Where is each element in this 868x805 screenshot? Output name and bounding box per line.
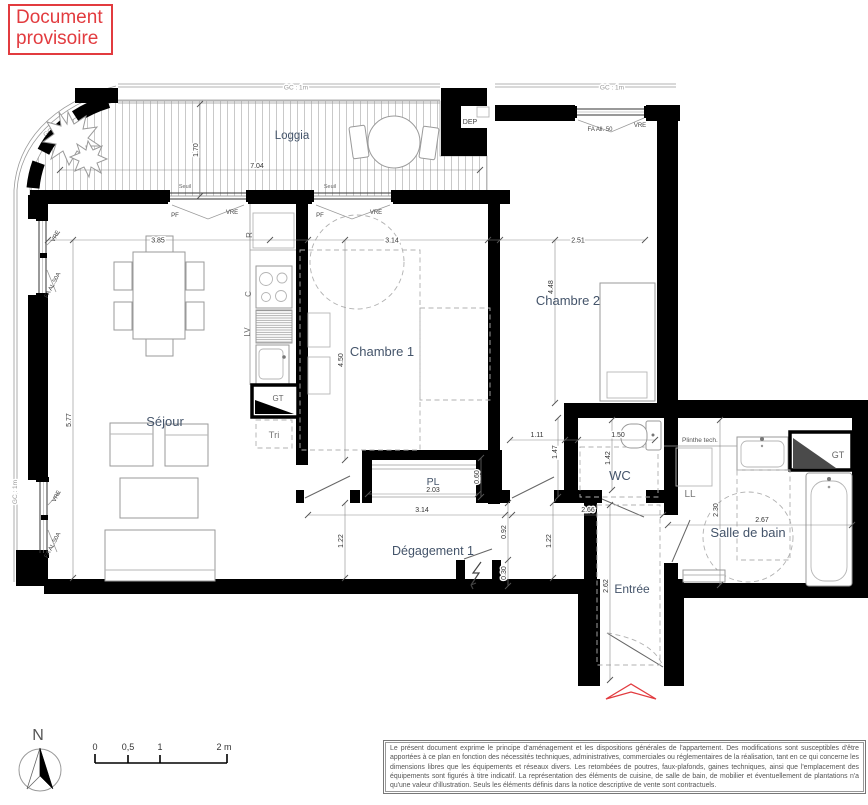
vre-label-left-1: VRE (51, 230, 62, 244)
dim-label: 3.85 (151, 238, 165, 245)
bed-dashed (420, 308, 490, 400)
dim-label: 2.62 (603, 579, 610, 593)
dining-table (133, 252, 185, 339)
dim-label: 1.11 (530, 432, 543, 439)
gc-label-top-right: GC : 1m (600, 85, 624, 92)
scale-tick-05: 0,5 (122, 742, 135, 752)
room-label-chambre2: Chambre 2 (536, 293, 600, 308)
dining-chair (114, 262, 132, 290)
dim-label: 0.92 (501, 525, 508, 539)
dishwasher-label: LV (243, 327, 252, 337)
dim-label: 1.22 (546, 534, 553, 548)
dim-label: 2.30 (713, 503, 720, 517)
room-label-placard: PL (427, 476, 440, 488)
sofa (105, 530, 215, 581)
dim-label: 3.14 (415, 507, 429, 514)
scale-tick-1: 1 (157, 742, 162, 752)
hob-label: C (244, 291, 253, 297)
dining-chair (186, 302, 204, 330)
plinthe-label: Plinthe tech. (682, 437, 718, 444)
vre-label-2: VRE (370, 210, 382, 216)
room-label-sejour: Séjour (146, 414, 184, 429)
gt-label-bath: GT (832, 450, 845, 460)
vre-label-left-2: VRE (52, 490, 63, 504)
provisional-stamp: Document provisoire (8, 4, 113, 55)
washing-machine-area (676, 448, 712, 486)
nightstand (308, 357, 330, 394)
dim-label: 1.22 (338, 534, 345, 548)
dim-label: 1.42 (605, 451, 612, 465)
gc-label-left: GC : 1m (12, 480, 19, 504)
clearance-circle (310, 215, 404, 309)
room-label-loggia: Loggia (275, 130, 310, 142)
dim-label: 5.77 (66, 413, 73, 427)
dim-label: 7.04 (250, 163, 264, 170)
chambre2-furniture (600, 283, 655, 401)
loggia-round-table (368, 116, 420, 168)
scale-tick-2m: 2 m (216, 742, 231, 752)
dining-chair (146, 338, 173, 356)
gc-label-top-left: GC : 1m (284, 85, 308, 92)
bathtub-icon (806, 473, 852, 586)
scale-bar: 0 0,5 1 2 m (92, 742, 231, 763)
legal-notice: Le présent document exprime le principe … (383, 740, 866, 794)
fa-al50a-label-left-1: FA AL.50A (44, 272, 62, 300)
dim-label: 2.03 (426, 487, 440, 494)
scale-tick-0: 0 (92, 742, 97, 752)
north-arrow: N (19, 727, 61, 791)
dining-chair (186, 262, 204, 290)
legal-notice-text: Le présent document exprime le principe … (390, 745, 859, 789)
armchair (165, 424, 208, 466)
sejour-furniture (105, 236, 215, 581)
room-label-entree: Entrée (614, 582, 650, 596)
toilet-bowl-icon (621, 424, 647, 448)
dim-label: 2.51 (571, 238, 585, 245)
room-label-wc: WC (609, 468, 631, 483)
dim-label: 3.14 (385, 238, 399, 245)
dim-label: 1.47 (552, 445, 559, 459)
coffee-table (120, 478, 198, 518)
bath-step (683, 570, 725, 582)
fridge-label: R (245, 232, 254, 238)
dim-label: 4.48 (548, 280, 555, 294)
room-label-salle-de-bain: Salle de bain (710, 525, 785, 540)
washing-machine-label: LL (684, 489, 696, 500)
stamp-line1: Document (16, 7, 103, 28)
armchair (110, 423, 153, 466)
gt-label-kitchen: GT (272, 394, 283, 403)
fa-all50-label: FA All. 50 (587, 127, 613, 133)
dishwasher-icon (256, 310, 292, 343)
pf-label-2: PF (316, 213, 324, 219)
floor-plan: GC : 1m GC : 1m GC : 1m GC : 1m (0, 0, 868, 800)
vre-label-1: VRE (226, 210, 238, 216)
dep-label: DEP (463, 119, 478, 126)
dim-label: 4.50 (338, 353, 345, 367)
pf-label-1: PF (171, 213, 179, 219)
fridge-icon (253, 213, 294, 248)
dim-label: 2.67 (755, 517, 769, 524)
seuil-label-2: Seuil (324, 184, 336, 190)
hob-icon (256, 266, 292, 308)
stamp-line2: provisoire (16, 28, 103, 49)
kitchen (250, 204, 298, 448)
closet-rail (372, 465, 476, 497)
dim-label: 0.60 (474, 470, 481, 484)
entrance-arrow-icon (606, 684, 656, 699)
bathroom-fixtures (664, 432, 852, 586)
room-label-chambre1: Chambre 1 (350, 344, 414, 359)
dim-label: 2.66 (581, 507, 595, 514)
dim-label: 1.50 (611, 432, 625, 439)
dining-chair (114, 302, 132, 330)
seuil-label-1: Seuil (179, 184, 191, 190)
north-label: N (32, 727, 44, 744)
vre-label-3: VRE (634, 123, 646, 129)
tri-label: Tri (269, 430, 280, 441)
dim-label: 1.70 (193, 143, 200, 157)
nightstand (308, 313, 330, 347)
dim-label: 0.30 (501, 566, 508, 580)
room-label-degagement: Dégagement 1 (392, 544, 474, 558)
chambre1-furniture (300, 215, 490, 450)
